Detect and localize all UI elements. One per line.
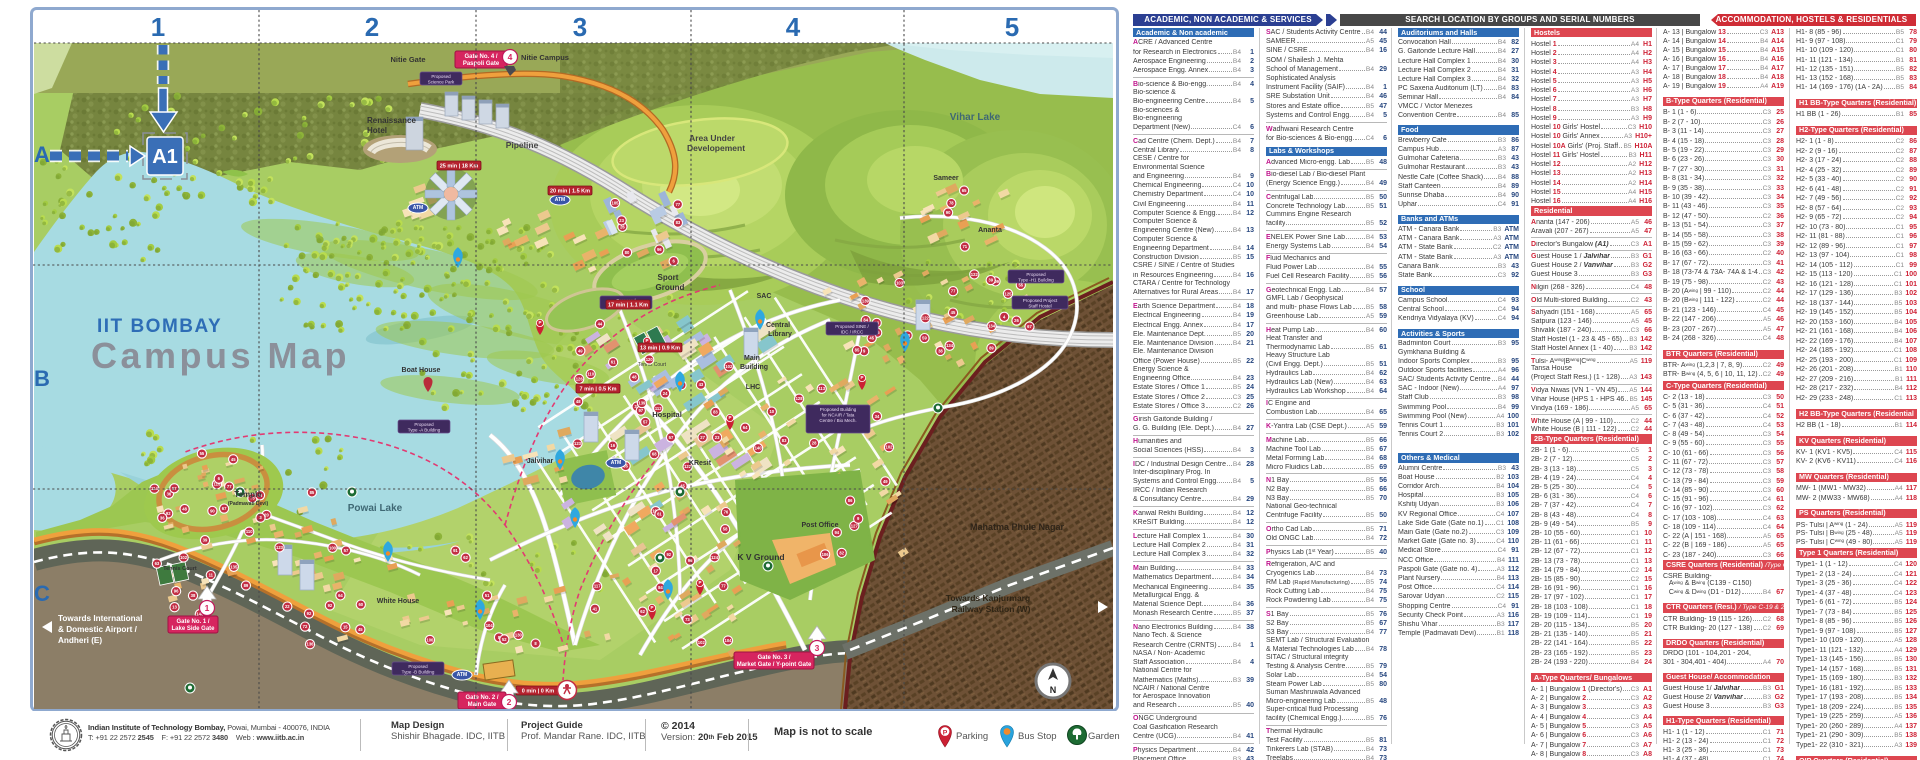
svg-text:104: 104 (725, 638, 733, 643)
svg-text:& Domestic Airport /: & Domestic Airport / (58, 625, 138, 634)
svg-text:Parking: Parking (956, 731, 988, 742)
svg-text:38: 38 (191, 593, 196, 598)
svg-text:Railway Station (W): Railway Station (W) (952, 604, 1031, 614)
svg-text:77: 77 (951, 289, 956, 294)
svg-text:10: 10 (769, 409, 774, 414)
svg-text:127: 127 (851, 523, 859, 528)
svg-text:39: 39 (988, 278, 993, 283)
svg-text:126: 126 (576, 376, 584, 381)
svg-text:128: 128 (796, 396, 804, 401)
svg-text:100: 100 (329, 545, 337, 550)
svg-text:Proposed: Proposed (408, 664, 428, 669)
svg-text:Vihar Lake: Vihar Lake (950, 112, 1001, 123)
svg-text:11: 11 (209, 573, 214, 578)
svg-text:Nitie Campus: Nitie Campus (521, 53, 569, 62)
svg-text:4: 4 (786, 12, 801, 42)
svg-text:Type -B Building: Type -B Building (402, 670, 435, 675)
svg-text:83: 83 (782, 438, 787, 443)
svg-text:100: 100 (426, 637, 434, 642)
svg-text:61: 61 (657, 512, 662, 517)
svg-text:5: 5 (1005, 12, 1019, 42)
svg-text:3: 3 (573, 12, 587, 42)
svg-text:Proposed: Proposed (1026, 272, 1046, 277)
svg-text:82: 82 (839, 550, 844, 555)
svg-text:P: P (645, 338, 648, 343)
svg-text:77: 77 (721, 584, 726, 589)
svg-text:61: 61 (611, 360, 616, 365)
svg-text:Pipeline: Pipeline (506, 140, 539, 150)
svg-text:113: 113 (818, 386, 825, 391)
svg-text:85: 85 (310, 490, 315, 495)
svg-text:26: 26 (1014, 318, 1019, 323)
svg-text:15: 15 (343, 625, 348, 630)
svg-text:77: 77 (675, 202, 680, 207)
svg-text:60: 60 (358, 602, 363, 607)
svg-text:84: 84 (658, 585, 663, 590)
svg-text:K V Ground: K V Ground (737, 552, 784, 562)
svg-text:Centre / Bio Mech.: Centre / Bio Mech. (819, 418, 856, 423)
svg-text:122: 122 (922, 316, 930, 321)
svg-text:90: 90 (946, 210, 951, 215)
svg-text:(Padmavati Devi): (Padmavati Devi) (228, 501, 269, 507)
svg-text:76: 76 (724, 510, 729, 515)
svg-text:48: 48 (632, 375, 637, 380)
svg-text:1: 1 (205, 603, 210, 613)
svg-text:77: 77 (227, 484, 232, 489)
svg-text:68: 68 (652, 452, 657, 457)
svg-text:Garden: Garden (1088, 731, 1120, 742)
svg-text:103: 103 (896, 280, 904, 285)
svg-text:44: 44 (598, 321, 603, 326)
svg-text:P: P (943, 729, 948, 736)
svg-text:45: 45 (869, 336, 874, 341)
svg-text:Type -A Building: Type -A Building (408, 428, 441, 433)
svg-text:KResit: KResit (689, 460, 712, 467)
svg-text:Sport: Sport (658, 273, 679, 282)
svg-text:58: 58 (723, 527, 728, 532)
svg-text:Towards Kanjurmarg: Towards Kanjurmarg (946, 593, 1030, 603)
svg-text:89: 89 (989, 346, 994, 351)
svg-text:136: 136 (307, 642, 315, 647)
svg-text:139: 139 (862, 298, 870, 303)
svg-text:45: 45 (231, 457, 236, 462)
svg-text:Library: Library (768, 331, 792, 338)
svg-text:140: 140 (755, 446, 763, 451)
svg-text:28: 28 (812, 441, 817, 446)
svg-text:97: 97 (638, 408, 643, 413)
svg-text:17 min | 1.1 Km: 17 min | 1.1 Km (608, 303, 648, 309)
svg-text:23: 23 (619, 218, 624, 223)
svg-text:Gate No. 1 /: Gate No. 1 / (176, 619, 209, 625)
svg-text:Jalvihar: Jalvihar (527, 458, 554, 465)
svg-text:1: 1 (151, 12, 165, 42)
svg-text:A1: A1 (152, 146, 178, 168)
svg-text:78: 78 (949, 201, 954, 206)
svg-text:135: 135 (230, 564, 238, 569)
svg-text:Andheri (E): Andheri (E) (58, 636, 102, 645)
svg-text:LHC: LHC (746, 384, 760, 391)
svg-text:64: 64 (743, 425, 748, 430)
svg-text:62: 62 (640, 609, 645, 614)
svg-text:Hotel: Hotel (367, 126, 387, 135)
svg-text:72: 72 (303, 624, 308, 629)
svg-text:41: 41 (593, 606, 598, 611)
svg-text:P: P (728, 415, 731, 420)
svg-text:55: 55 (200, 451, 205, 456)
svg-text:86: 86 (848, 498, 853, 503)
svg-text:Proposed SINE /: Proposed SINE / (835, 324, 869, 329)
svg-text:0 min | 0 Km: 0 min | 0 Km (522, 689, 555, 695)
svg-text:83: 83 (713, 409, 718, 414)
svg-text:64: 64 (338, 593, 343, 598)
svg-text:67: 67 (1027, 324, 1032, 329)
svg-text:92: 92 (328, 603, 333, 608)
svg-text:20 min | 1.5 Km: 20 min | 1.5 Km (550, 189, 590, 195)
svg-text:96: 96 (657, 247, 662, 252)
svg-text:123: 123 (276, 545, 284, 550)
svg-text:16: 16 (610, 443, 615, 448)
svg-text:96: 96 (174, 589, 179, 594)
svg-text:Market Gate / Y-point Gate: Market Gate / Y-point Gate (737, 662, 812, 668)
svg-text:120: 120 (646, 357, 654, 362)
svg-text:124: 124 (711, 555, 719, 560)
svg-text:102: 102 (180, 555, 188, 560)
svg-text:Temple: Temple (234, 490, 262, 499)
svg-text:ATM: ATM (555, 197, 565, 203)
svg-text:67: 67 (222, 506, 227, 511)
svg-text:71: 71 (962, 244, 967, 249)
svg-text:57: 57 (669, 435, 674, 440)
svg-text:Post Office: Post Office (802, 522, 839, 529)
svg-text:102: 102 (725, 364, 733, 369)
svg-text:P: P (538, 320, 541, 325)
svg-text:57: 57 (643, 419, 648, 424)
svg-text:49: 49 (578, 348, 583, 353)
svg-text:7 min | 0.5 Km: 7 min | 0.5 Km (580, 387, 617, 393)
svg-text:92: 92 (666, 552, 671, 557)
svg-text:P: P (698, 580, 701, 585)
svg-text:Staff Hostel: Staff Hostel (1028, 304, 1051, 309)
svg-text:Type -H1 Building: Type -H1 Building (1018, 278, 1054, 283)
svg-text:105: 105 (612, 201, 620, 206)
svg-text:92: 92 (307, 611, 312, 616)
svg-text:91: 91 (453, 548, 458, 553)
svg-text:Ground: Ground (656, 283, 685, 292)
svg-text:90: 90 (210, 508, 215, 513)
svg-text:Powai Lake: Powai Lake (348, 503, 403, 514)
svg-text:Proposed Project: Proposed Project (1023, 298, 1058, 303)
svg-text:45: 45 (951, 310, 956, 315)
svg-text:122: 122 (971, 272, 979, 277)
svg-text:ATM: ATM (611, 460, 621, 466)
svg-text:B: B (34, 366, 50, 391)
svg-text:for NCAIR / Tata: for NCAIR / Tata (822, 413, 855, 418)
svg-text:IIT BOMBAY: IIT BOMBAY (97, 316, 222, 337)
svg-text:57: 57 (344, 548, 349, 553)
svg-text:Lake Side Gate: Lake Side Gate (171, 626, 215, 632)
svg-text:102: 102 (886, 445, 894, 450)
svg-text:Campus Map: Campus Map (91, 335, 350, 376)
svg-text:48: 48 (576, 399, 581, 404)
svg-text:96: 96 (688, 558, 693, 563)
svg-text:Bus Stop: Bus Stop (1018, 731, 1057, 742)
svg-text:Mahatma Phule Nagar: Mahatma Phule Nagar (970, 522, 1065, 532)
svg-text:22: 22 (285, 604, 290, 609)
svg-text:130: 130 (515, 633, 523, 638)
svg-text:45: 45 (358, 627, 363, 632)
svg-text:13: 13 (172, 605, 177, 610)
svg-text:73: 73 (685, 617, 690, 622)
svg-text:51: 51 (485, 593, 490, 598)
svg-text:85: 85 (855, 348, 860, 353)
svg-text:Ananta: Ananta (978, 227, 1002, 234)
svg-text:27: 27 (700, 435, 705, 440)
svg-text:Hospital: Hospital (652, 410, 682, 419)
svg-text:57: 57 (172, 486, 177, 491)
svg-text:Area Under: Area Under (689, 133, 736, 143)
svg-text:49: 49 (883, 479, 888, 484)
svg-text:23: 23 (715, 435, 720, 440)
svg-text:IDC / IRCC: IDC / IRCC (841, 330, 864, 335)
svg-text:80: 80 (625, 250, 630, 255)
svg-text:N: N (1050, 685, 1057, 695)
svg-text:123: 123 (574, 441, 582, 446)
svg-text:Tennis Court: Tennis Court (163, 566, 197, 572)
svg-text:C: C (34, 581, 50, 606)
svg-text:83: 83 (676, 220, 681, 225)
svg-text:P: P (650, 605, 653, 610)
svg-text:59: 59 (922, 336, 927, 341)
svg-text:13 min | 0.9 Km: 13 min | 0.9 Km (640, 346, 680, 352)
svg-text:Towards International: Towards International (58, 614, 142, 623)
svg-text:Nitie Gate: Nitie Gate (390, 55, 425, 64)
svg-text:Proposed: Proposed (414, 422, 434, 427)
svg-text:P: P (860, 375, 863, 380)
svg-text:Developement: Developement (687, 143, 745, 153)
svg-text:34: 34 (875, 414, 880, 419)
svg-text:A: A (34, 142, 50, 167)
svg-text:24: 24 (663, 391, 668, 396)
svg-text:43: 43 (699, 382, 704, 387)
svg-text:Central: Central (766, 322, 790, 329)
svg-text:17: 17 (653, 568, 658, 573)
svg-text:102: 102 (698, 640, 706, 645)
svg-text:94: 94 (834, 530, 839, 535)
svg-text:4: 4 (508, 52, 513, 62)
svg-text:Gate No. 2 /: Gate No. 2 / (465, 695, 498, 701)
svg-text:Proposed: Proposed (431, 74, 451, 79)
svg-text:Main Gate: Main Gate (468, 702, 497, 708)
svg-text:Sameer: Sameer (933, 175, 959, 182)
svg-text:48: 48 (182, 507, 187, 512)
svg-text:Boat House: Boat House (402, 367, 441, 374)
svg-text:3: 3 (815, 643, 820, 653)
svg-text:89: 89 (244, 583, 249, 588)
svg-text:Renaissance: Renaissance (367, 116, 416, 125)
svg-text:139: 139 (638, 401, 646, 406)
svg-text:Science Park: Science Park (428, 80, 455, 85)
svg-text:SAC: SAC (757, 293, 772, 300)
svg-text:ATM: ATM (413, 205, 423, 211)
svg-text:Building: Building (740, 364, 768, 371)
svg-text:36: 36 (160, 515, 165, 520)
svg-text:Gate No. 3 /: Gate No. 3 / (757, 655, 790, 661)
svg-text:62: 62 (463, 555, 468, 560)
svg-text:White House: White House (377, 598, 419, 605)
svg-text:65: 65 (962, 188, 967, 193)
svg-text:63: 63 (155, 561, 160, 566)
svg-text:25 min | 18 Km: 25 min | 18 Km (440, 164, 479, 170)
svg-text:106: 106 (822, 552, 830, 557)
svg-text:39: 39 (203, 538, 208, 543)
svg-text:117: 117 (594, 584, 601, 589)
svg-text:104: 104 (486, 623, 494, 628)
svg-text:Paspoli Gate: Paspoli Gate (463, 61, 500, 67)
svg-text:ATM: ATM (457, 672, 467, 678)
svg-text:110: 110 (246, 529, 253, 534)
svg-text:52: 52 (502, 637, 507, 642)
svg-text:2: 2 (365, 12, 379, 42)
svg-text:38: 38 (938, 349, 943, 354)
svg-text:2: 2 (507, 697, 512, 707)
svg-text:125: 125 (1005, 291, 1013, 296)
svg-text:Gate No. 4 /: Gate No. 4 / (464, 54, 497, 60)
svg-text:Proposed Building: Proposed Building (820, 407, 857, 412)
svg-text:134: 134 (946, 343, 954, 348)
svg-text:134: 134 (988, 324, 996, 329)
svg-text:Main: Main (744, 355, 760, 362)
svg-text:110: 110 (587, 372, 594, 377)
